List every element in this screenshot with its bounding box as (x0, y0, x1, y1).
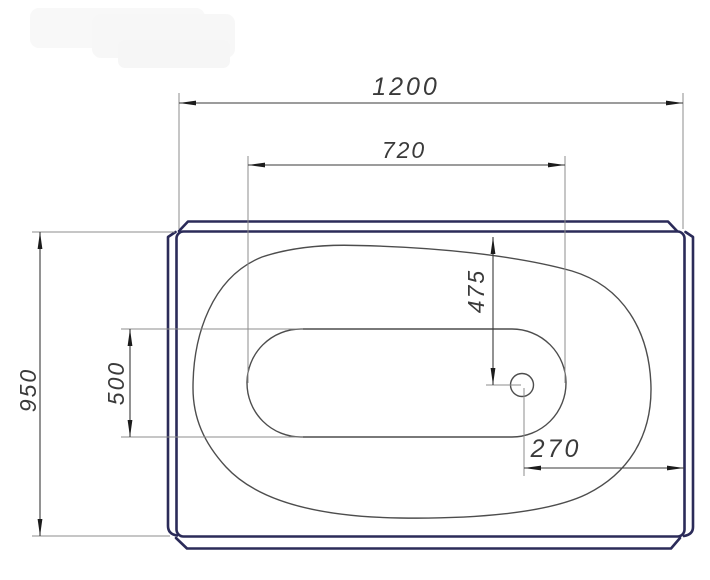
dimension-label-floor-depth: 500 (103, 361, 129, 405)
drawing-background (0, 0, 710, 580)
dimension-label-overall-width: 1200 (372, 73, 440, 101)
bathtub-dimension-drawing: 1200 720 950 500 475 270 (0, 0, 710, 580)
dimension-label-floor-width: 720 (382, 137, 426, 163)
watermark-blob-3 (118, 40, 230, 68)
dimension-label-drain-from-top: 475 (463, 269, 489, 313)
dimension-label-overall-depth: 950 (15, 368, 41, 412)
dimension-label-drain-from-right: 270 (530, 435, 582, 463)
technical-drawing-canvas: 1200 720 950 500 475 270 (0, 0, 710, 580)
